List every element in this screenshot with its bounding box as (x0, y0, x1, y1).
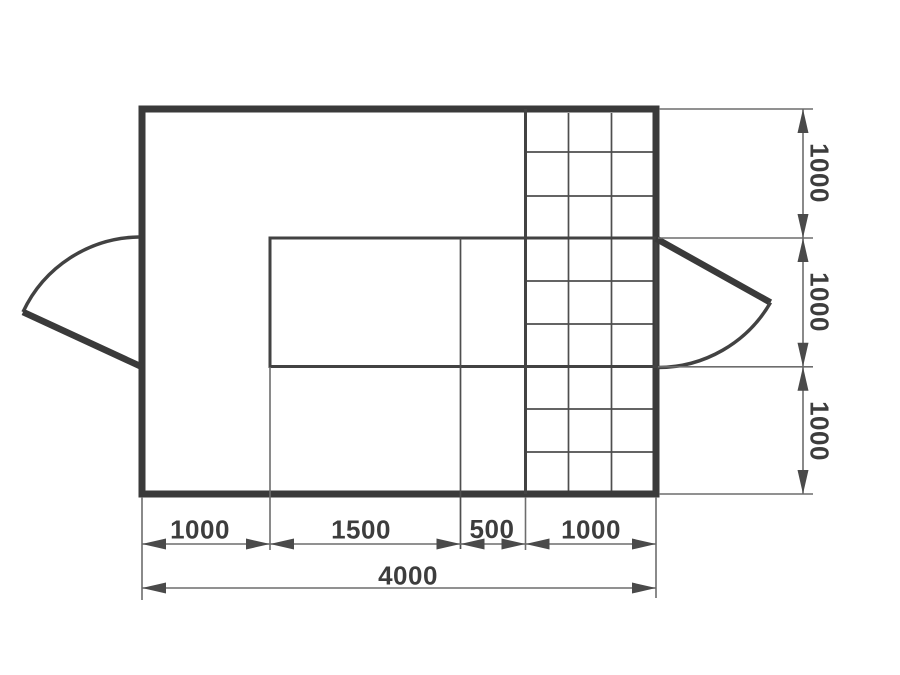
canvas: 1000 1500 500 1000 4000 (0, 0, 900, 675)
right-door-leaf (656, 239, 771, 303)
dim-label-right-2: 1000 (805, 272, 835, 332)
right-door-swing-arc (657, 303, 771, 368)
inner-zone-rectangle (270, 238, 656, 367)
dim-label-bottom-3: 500 (470, 514, 515, 544)
dim-label-right-3: 1000 (805, 401, 835, 461)
outer-wall-rectangle (142, 109, 656, 494)
right-dimensions: 1000 1000 1000 (658, 109, 835, 494)
floor-plan-drawing: 1000 1500 500 1000 4000 (0, 0, 900, 675)
dim-label-bottom-2: 1500 (331, 515, 391, 545)
inner-zone (270, 238, 656, 549)
room-walls (142, 109, 656, 494)
dim-label-bottom-4: 1000 (561, 515, 621, 545)
dim-label-bottom-1: 1000 (170, 515, 230, 545)
left-door-swing-arc (23, 237, 139, 312)
right-door (656, 239, 771, 368)
dim-label-bottom-total: 4000 (378, 561, 438, 591)
bottom-dimensions: 1000 1500 500 1000 4000 (142, 367, 656, 600)
tiled-grid-area (526, 109, 653, 494)
left-door-leaf (23, 312, 141, 367)
left-door (23, 237, 141, 367)
dim-label-right-1: 1000 (805, 143, 835, 203)
